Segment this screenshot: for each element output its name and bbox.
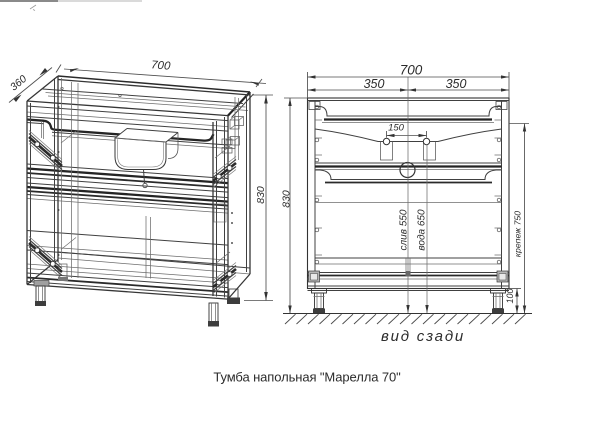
svg-text:слив 550: слив 550 <box>399 209 410 250</box>
svg-text:700: 700 <box>151 59 172 72</box>
svg-text:крепеж 750: крепеж 750 <box>513 211 523 257</box>
svg-text:Тумба напольная "Марелла 70": Тумба напольная "Марелла 70" <box>213 370 401 385</box>
svg-text:100: 100 <box>505 288 515 303</box>
svg-text:150: 150 <box>388 123 405 134</box>
svg-text:350: 350 <box>446 77 467 91</box>
svg-text:830: 830 <box>281 190 293 208</box>
svg-text:вид сзади: вид сзади <box>381 328 465 345</box>
svg-text:700: 700 <box>400 63 423 78</box>
svg-text:830: 830 <box>255 186 267 204</box>
svg-text:350: 350 <box>364 77 385 91</box>
svg-text:вода 650: вода 650 <box>417 209 428 251</box>
